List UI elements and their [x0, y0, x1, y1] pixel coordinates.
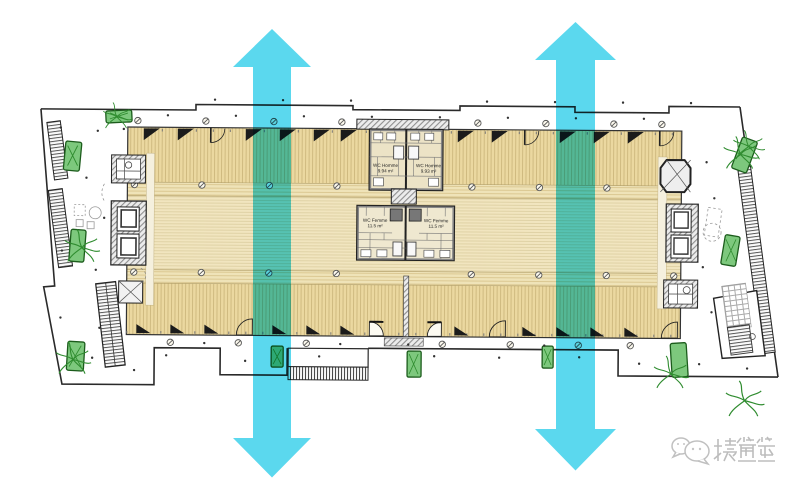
svg-text:WC Homme: WC Homme	[373, 163, 398, 168]
svg-text:WC Homme: WC Homme	[416, 163, 441, 168]
svg-text:11.5 m²: 11.5 m²	[428, 224, 444, 229]
svg-text:9.93 m²: 9.93 m²	[421, 169, 437, 174]
svg-text:WC Femme: WC Femme	[363, 218, 388, 223]
svg-text:11.5 m²: 11.5 m²	[367, 223, 383, 228]
svg-text:9.94 m²: 9.94 m²	[378, 168, 394, 173]
svg-text:WC Femme: WC Femme	[424, 218, 449, 223]
